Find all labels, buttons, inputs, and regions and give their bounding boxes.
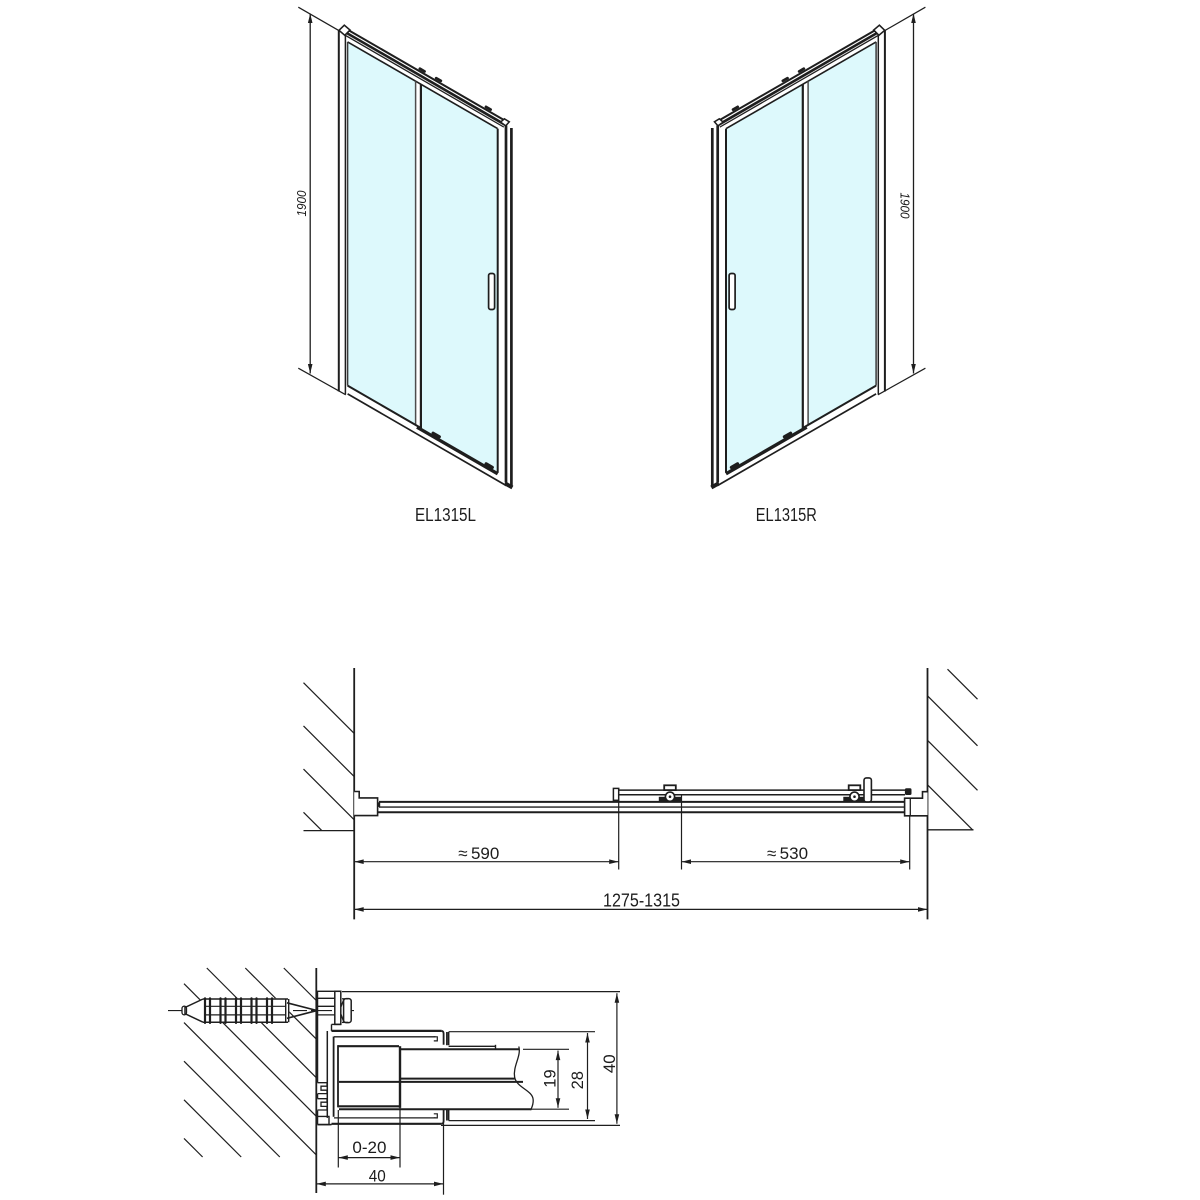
svg-text:≈ 530: ≈ 530 — [767, 844, 808, 863]
svg-text:28: 28 — [569, 1071, 587, 1089]
svg-text:EL1315R: EL1315R — [756, 505, 817, 525]
svg-text:40: 40 — [600, 1054, 619, 1073]
svg-text:40: 40 — [369, 1166, 386, 1185]
svg-text:1900: 1900 — [294, 190, 309, 217]
svg-text:1900: 1900 — [897, 193, 912, 220]
svg-text:19: 19 — [541, 1069, 559, 1087]
svg-text:1275-1315: 1275-1315 — [603, 890, 680, 911]
svg-text:≈ 590: ≈ 590 — [458, 844, 499, 863]
svg-text:0-20: 0-20 — [352, 1138, 386, 1157]
svg-text:EL1315L: EL1315L — [415, 505, 476, 525]
